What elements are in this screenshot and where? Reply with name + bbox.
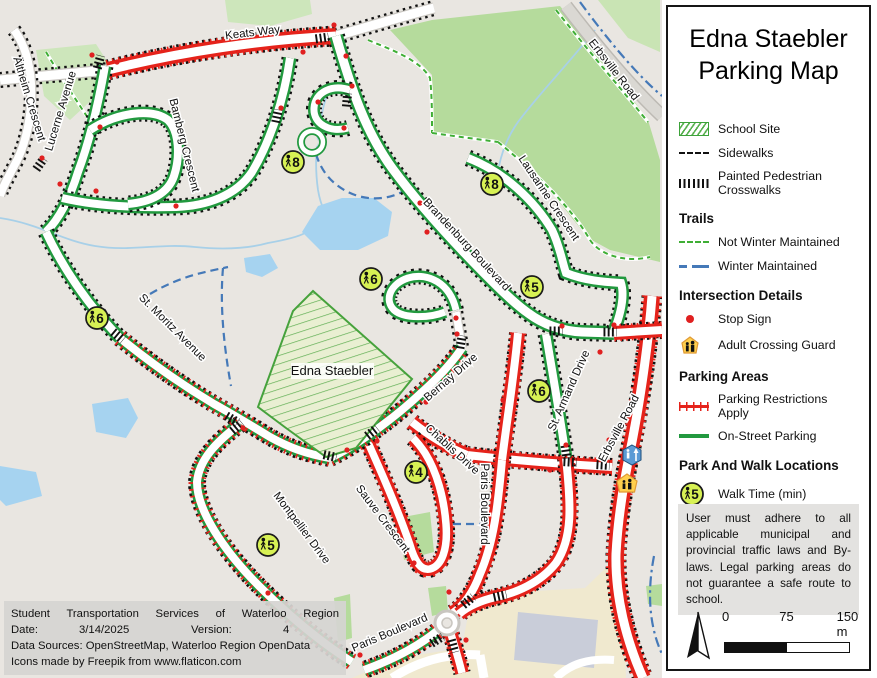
stop-sign-dot [374,438,379,443]
walk-time-marker: 6 [86,307,108,329]
info-line-sources: Data Sources: OpenStreetMap, Waterloo Re… [11,638,339,654]
stop-sign-dot [114,59,119,64]
stop-sign-dot [424,229,429,234]
legend-items: School SiteSidewalksPainted Pedestrian C… [679,121,858,507]
stop-sign-dot [240,425,245,430]
svg-text:6: 6 [538,384,546,399]
edna-staebler-parking-map: Edna Staebler 88665645 Keats WayÄlth [0,0,877,678]
parking-restriction-swatch [679,405,709,408]
stop-sign-dot [454,331,459,336]
legend-item-restriction: Parking Restrictions Apply [679,392,858,420]
legend-item-label: Stop Sign [718,312,771,326]
legend-item-crosswalk: Painted Pedestrian Crosswalks [679,169,858,197]
street-label: Paris Boulevard [478,463,490,544]
scale-zero: 0 [722,609,779,639]
version-label: Version: [191,622,283,638]
stop-sign-dot [343,53,348,58]
stop-sign-dot [559,323,564,328]
stop-sign-dot [597,349,602,354]
legend-item-stop: Stop Sign [679,311,858,327]
school-site-swatch [679,122,709,136]
stop-sign-dot [300,49,305,54]
scale-mid: 75 [779,609,836,639]
walk-time-marker: 6 [528,380,550,402]
crossing-guard-icon [679,335,701,355]
walk-time-marker: 8 [282,151,304,173]
info-line-date-version: Date: 3/14/2025 Version: 4 [11,622,339,638]
svg-text:5: 5 [531,280,539,295]
stop-sign-dot [315,99,320,104]
legend-section-heading: Parking Areas [679,369,858,384]
svg-text:5: 5 [691,487,699,502]
version-value: 4 [283,622,289,638]
stop-sign-dot [331,22,336,27]
stop-sign-dot [446,589,451,594]
legend-item-label: Adult Crossing Guard [718,338,836,352]
legend-item-label: Painted Pedestrian Crosswalks [718,169,858,197]
map-canvas: Edna Staebler 88665645 Keats WayÄlth [0,0,662,678]
stop-sign-dot [463,637,468,642]
stop-sign-dot [93,188,98,193]
svg-text:4: 4 [415,465,423,480]
legend-item-label: Parking Restrictions Apply [718,392,858,420]
svg-text:8: 8 [491,177,499,192]
legend-item-label: Not Winter Maintained [718,235,840,249]
stop-sign-dot [173,203,178,208]
legend-item-trail-green: Not Winter Maintained [679,234,858,250]
stop-sign-dot [278,105,283,110]
trail-not-winter-swatch [679,241,709,243]
legend-item-label: Walk Time (min) [718,487,806,501]
legend-section-heading: Trails [679,211,858,226]
svg-text:5: 5 [267,538,275,553]
stop-sign-dot [39,155,44,160]
info-line-credits: Icons made by Freepik from www.flaticon.… [11,654,339,670]
stop-sign-dot [349,83,354,88]
legend-item-guard: Adult Crossing Guard [679,335,858,355]
on-street-parking-swatch [679,434,709,438]
legend-disclaimer: User must adhere to all applicable munic… [678,504,859,615]
stop-sign-dot [341,125,346,130]
map-title: Edna Staebler Parking Map [679,23,858,87]
legend-item-onstreet: On-Street Parking [679,428,858,444]
stop-sign-dot [547,467,552,472]
svg-text:8: 8 [292,155,300,170]
stop-sign-dot [89,52,94,57]
legend-item-label: Sidewalks [718,146,773,160]
pedestrian-crossover-sign-icon [623,445,641,465]
info-line-services: Student Transportation Services of Water… [11,606,339,622]
crosswalk-swatch [679,179,709,188]
legend-item-sidewalk: Sidewalks [679,145,858,161]
stop-sign-dot [563,442,568,447]
school-label: Edna Staebler [291,363,374,378]
stop-sign-dot [344,447,349,452]
scale-box: 0 75 150 m [678,605,861,663]
date-label: Date: [11,622,79,638]
svg-text:6: 6 [370,272,378,287]
date-value: 3/14/2025 [79,622,191,638]
walk-time-marker: 5 [257,534,279,556]
north-arrow-icon [684,609,712,661]
walk-time-icon: 5 [679,481,705,507]
stop-sign-dot [611,322,616,327]
walk-time-marker: 4 [405,461,427,483]
walk-time-marker: 6 [360,268,382,290]
stop-sign-dot [57,181,62,186]
walk-time-marker: 5 [521,276,543,298]
legend-item-label: School Site [718,122,780,136]
stop-sign-swatch [679,315,709,323]
scale-bar: 0 75 150 m [722,609,870,653]
legend-item-walk: 5Walk Time (min) [679,481,858,507]
legend-section-heading: Intersection Details [679,288,858,303]
legend-item-label: Winter Maintained [718,259,817,273]
legend-item-trail-blue: Winter Maintained [679,258,858,274]
svg-text:6: 6 [96,311,104,326]
stop-sign-dot [265,590,270,595]
stop-sign-dot [411,560,416,565]
legend-section-heading: Park And Walk Locations [679,458,858,473]
scale-end: 150 m [837,609,870,639]
legend-item-school: School Site [679,121,858,137]
stop-sign-dot [500,397,505,402]
legend-item-label: On-Street Parking [718,429,816,443]
stop-sign-dot [97,124,102,129]
map-info-box: Student Transportation Services of Water… [4,601,346,675]
legend-panel: Edna Staebler Parking Map School SiteSid… [666,5,871,671]
sidewalk-swatch [679,152,709,154]
stop-sign-dot [453,315,458,320]
walk-time-marker: 8 [481,173,503,195]
trail-winter-swatch [679,265,709,268]
